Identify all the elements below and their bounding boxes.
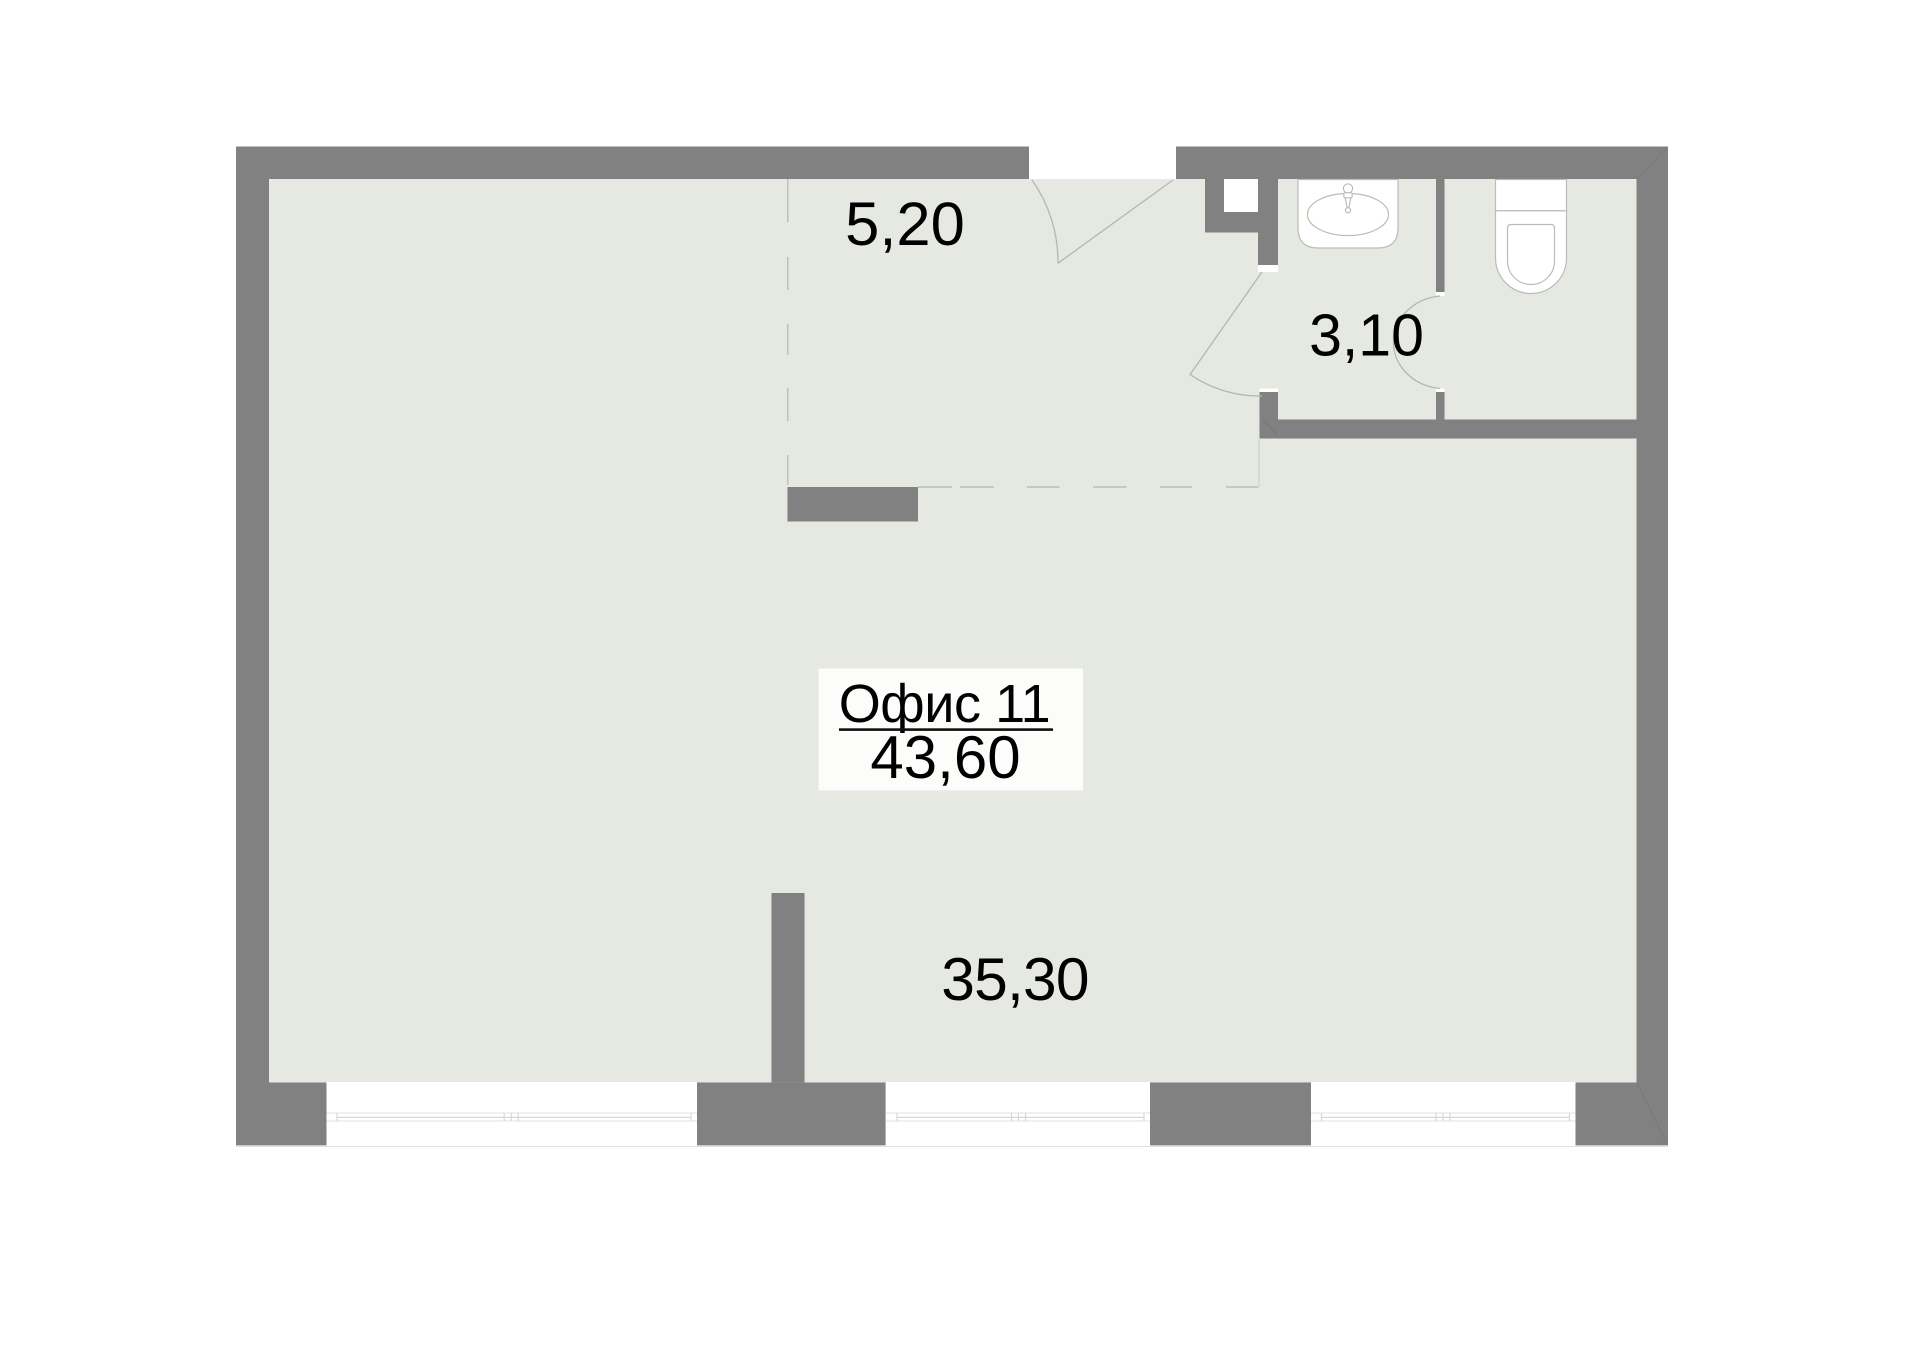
- svg-text:5,20: 5,20: [845, 190, 965, 259]
- svg-text:35,30: 35,30: [941, 945, 1088, 1013]
- svg-text:3,10: 3,10: [1309, 303, 1424, 369]
- svg-text:43,60: 43,60: [870, 724, 1020, 791]
